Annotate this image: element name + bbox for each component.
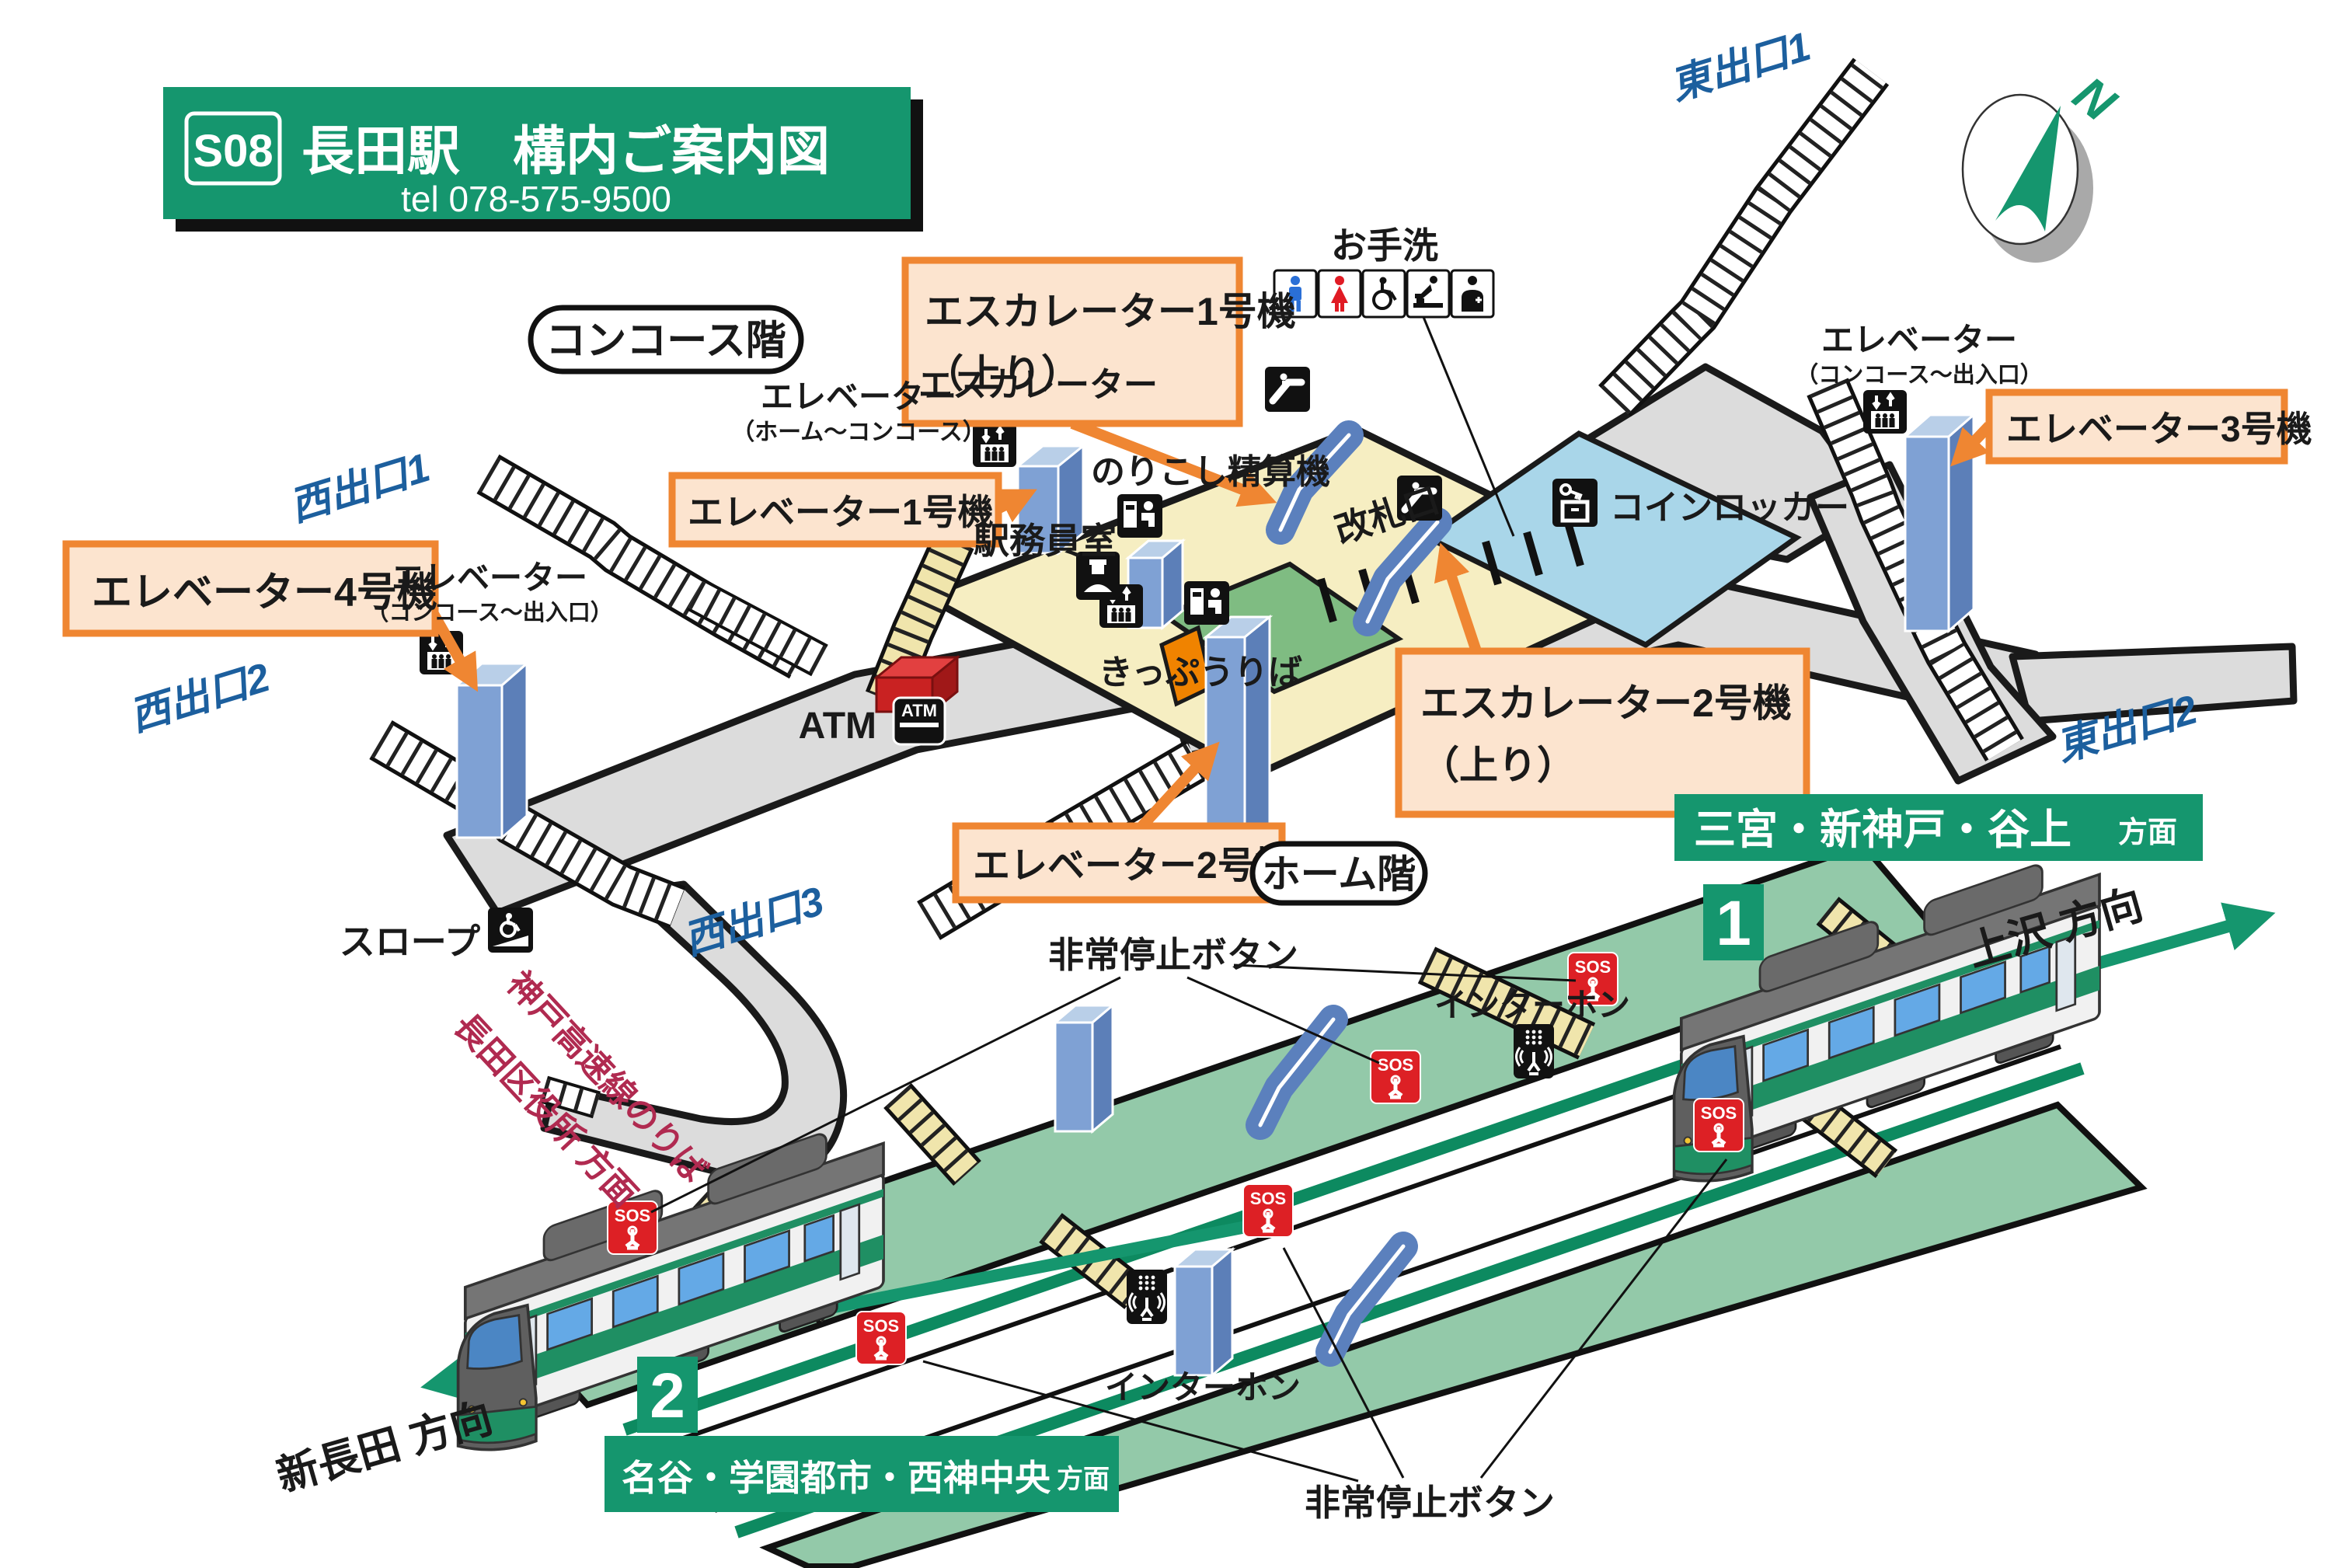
svg-text:お手洗: お手洗 (1331, 225, 1438, 266)
svg-text:（上り）: （上り） (1420, 744, 1576, 787)
svg-text:新長田 方向: 新長田 方向 (272, 1395, 498, 1500)
coin-locker-icon-use (1552, 479, 1598, 527)
interphone-icon-1 (1514, 1024, 1554, 1078)
svg-text:2: 2 (650, 1361, 685, 1431)
atm-icon: ATM (894, 698, 945, 744)
sos-3 (1243, 1184, 1293, 1237)
svg-text:西出口2: 西出口2 (124, 655, 275, 740)
svg-text:エレベーター1号機: エレベーター1号機 (688, 492, 994, 532)
interphone-icon-2 (1127, 1270, 1167, 1324)
ticket-office-icon (1184, 581, 1229, 625)
svg-text:（コンコース～出入口）: （コンコース～出入口） (366, 600, 613, 625)
svg-text:1: 1 (1716, 888, 1751, 959)
svg-text:非常停止ボタン: 非常停止ボタン (1305, 1483, 1555, 1523)
destination-myodani: 名谷・学園都市・西神中央 方面 (605, 1436, 1119, 1512)
svg-text:ATM: ATM (901, 701, 937, 720)
svg-text:ATM: ATM (799, 706, 876, 747)
floor-label-concourse: コンコース階 (531, 308, 801, 371)
svg-text:非常停止ボタン: 非常停止ボタン (1048, 935, 1298, 975)
destination-sanomiya: 三宮・新神戸・谷上 方面 (1674, 794, 2203, 861)
elevator3-icon (1863, 390, 1907, 434)
svg-text:方面: 方面 (2118, 817, 2177, 849)
svg-text:インターホン: インターホン (1434, 987, 1630, 1023)
svg-text:インターホン: インターホン (1105, 1369, 1301, 1406)
platform-number-2: 2 (637, 1357, 698, 1433)
compass-rose: N (1963, 65, 2127, 263)
svg-text:のりこし精算機: のりこし精算機 (1091, 453, 1330, 491)
header-panel: S08 長田駅 構内ご案内図 tel 078-575-9500 (163, 87, 923, 232)
toilet-icons (1274, 270, 1493, 317)
callout-escalator2 (1399, 651, 1807, 814)
svg-text:きっぷうりば: きっぷうりば (1099, 653, 1302, 692)
svg-text:（コンコース～出入口）: （コンコース～出入口） (1796, 362, 2043, 388)
svg-text:駅務員室: 駅務員室 (974, 521, 1117, 561)
svg-text:エレベーター: エレベーター (392, 559, 587, 596)
sos-5 (856, 1312, 906, 1364)
station-map: SOS (0, 0, 2331, 1568)
compass-north-label: N (2063, 65, 2127, 132)
svg-text:エスカレーター1号機: エスカレーター1号機 (925, 290, 1296, 333)
escalator1-icon (1265, 367, 1310, 412)
svg-text:コインロッカー: コインロッカー (1610, 489, 1849, 527)
slope-icon (488, 908, 533, 953)
phone-number: tel 078-575-9500 (401, 179, 671, 219)
fare-adjustment-icon (1117, 494, 1162, 538)
sos-1 (1371, 1051, 1420, 1103)
svg-text:エレベーター: エレベーター (761, 378, 956, 415)
sos-6 (1694, 1099, 1744, 1152)
floor-label-platform: ホーム階 (1253, 844, 1425, 903)
svg-text:スロープ: スロープ (340, 922, 480, 962)
platform-number-1: 1 (1703, 884, 1764, 960)
svg-text:方面: 方面 (1057, 1465, 1110, 1494)
svg-text:（ホーム～コンコース）: （ホーム～コンコース） (731, 419, 986, 445)
svg-text:エレベーター2号機: エレベーター2号機 (973, 845, 1292, 887)
elevator4-pillar (457, 664, 527, 838)
svg-text:エレベーター: エレベーター (1821, 322, 2017, 358)
svg-text:エレベーター3号機: エレベーター3号機 (2006, 409, 2312, 449)
svg-text:コンコース階: コンコース階 (545, 319, 786, 364)
svg-text:エスカレーター2号機: エスカレーター2号機 (1420, 681, 1792, 725)
page-title: 長田駅 構内ご案内図 (301, 122, 830, 181)
svg-text:S08: S08 (193, 126, 273, 176)
svg-text:ホーム階: ホーム階 (1262, 852, 1416, 896)
svg-text:東出口1: 東出口1 (1665, 24, 1816, 110)
svg-text:名谷・学園都市・西神中央: 名谷・学園都市・西神中央 (622, 1458, 1051, 1498)
svg-text:西出口1: 西出口1 (284, 445, 435, 531)
svg-text:三宮・新神戸・谷上: 三宮・新神戸・谷上 (1694, 807, 2071, 853)
